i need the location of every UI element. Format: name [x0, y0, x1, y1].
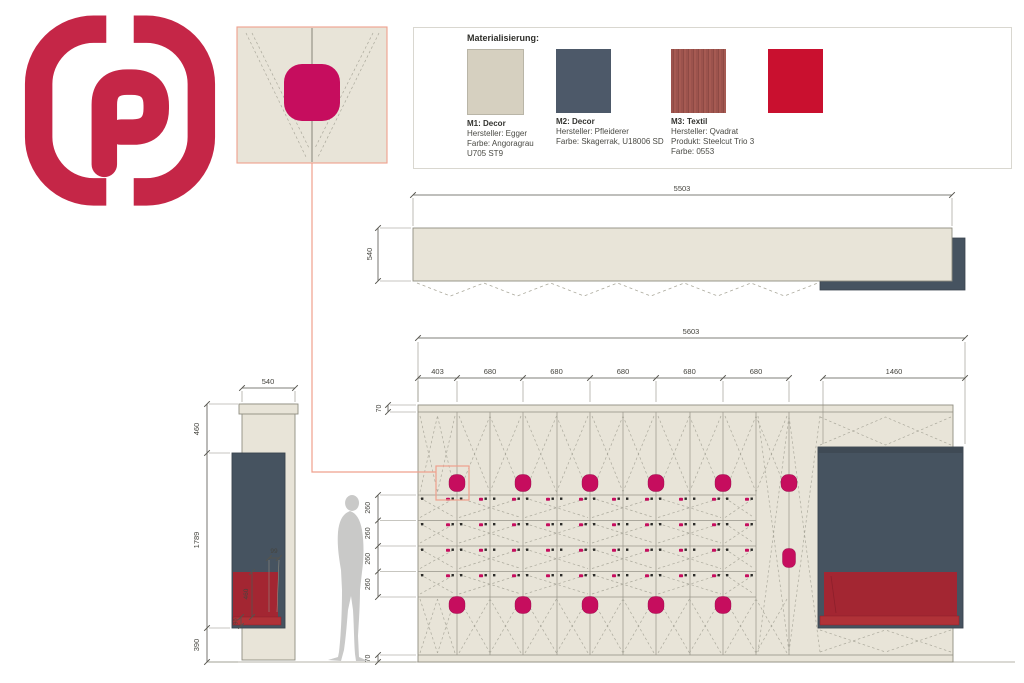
shelf-peg	[526, 549, 528, 551]
shelf-peg	[485, 523, 487, 525]
shelf-peg	[726, 549, 728, 551]
shelf-peg	[518, 498, 520, 500]
shelf-peg	[593, 549, 595, 551]
shelf-peg	[693, 498, 695, 500]
shelf-peg	[659, 498, 661, 500]
shelf-peg	[626, 523, 628, 525]
shelf-peg	[618, 549, 620, 551]
side-cushion	[233, 572, 278, 617]
side-width-label: 540	[262, 377, 275, 386]
peg-marker	[712, 549, 716, 552]
peg-marker	[612, 523, 616, 526]
row-label: 260	[365, 502, 372, 514]
shelf-peg	[560, 549, 562, 551]
peg-marker	[479, 549, 483, 552]
cushion-front-strip	[820, 616, 959, 625]
shelf-peg	[452, 523, 454, 525]
shelf-peg	[421, 574, 423, 576]
peg-marker	[446, 574, 450, 577]
drawing-canvas: 5503540560340368068068068068014607026026…	[0, 0, 1024, 683]
handle-knob	[648, 597, 664, 614]
side-height-label: 1789	[192, 532, 201, 549]
peg-marker	[612, 498, 616, 501]
plan-width-label: 5503	[674, 184, 691, 193]
peg-marker	[645, 523, 649, 526]
bench-cushion	[824, 572, 957, 616]
peg-marker	[745, 498, 749, 501]
shelf-peg	[560, 574, 562, 576]
peg-marker	[712, 523, 716, 526]
side-height-label: 460	[192, 423, 201, 436]
shelf-peg	[560, 498, 562, 500]
shelf-peg	[726, 523, 728, 525]
segment-label: 403	[431, 367, 444, 376]
peg-marker	[712, 498, 716, 501]
shelf-peg	[485, 574, 487, 576]
handle-knob	[648, 475, 664, 492]
peg-marker	[679, 574, 683, 577]
shelf-peg	[485, 498, 487, 500]
row-label: 260	[365, 527, 372, 539]
handle-knob	[582, 597, 598, 614]
shelf-peg	[651, 549, 653, 551]
shelf-peg	[718, 574, 720, 576]
peg-marker	[745, 549, 749, 552]
peg-marker	[512, 523, 516, 526]
shelf-peg	[493, 498, 495, 500]
shelf-peg	[493, 574, 495, 576]
peg-marker	[512, 498, 516, 501]
peg-marker	[579, 523, 583, 526]
shelf-peg	[618, 523, 620, 525]
detail-handle	[284, 64, 340, 121]
shelf-peg	[751, 523, 753, 525]
shelf-peg	[421, 523, 423, 525]
handle-knob	[449, 475, 465, 492]
human-silhouette	[328, 495, 368, 661]
shelf-peg	[421, 549, 423, 551]
strip-label: 90	[234, 618, 240, 624]
handle-knob	[515, 475, 531, 492]
peg-marker	[479, 523, 483, 526]
row-label: 260	[365, 553, 372, 565]
segment-label: 680	[617, 367, 630, 376]
handle-knob	[515, 597, 531, 614]
peg-marker	[546, 498, 550, 501]
shelf-peg	[726, 498, 728, 500]
bench-top-edge	[818, 447, 963, 453]
shelf-peg	[651, 523, 653, 525]
shelf-peg	[526, 523, 528, 525]
shelf-peg	[685, 549, 687, 551]
peg-marker	[546, 549, 550, 552]
peg-marker	[479, 498, 483, 501]
shelf-peg	[626, 574, 628, 576]
peg-marker	[512, 549, 516, 552]
shelf-peg	[751, 549, 753, 551]
handle-knob	[449, 597, 465, 614]
peg-marker	[612, 574, 616, 577]
peg-marker	[679, 498, 683, 501]
shelf-peg	[685, 498, 687, 500]
shelf-peg	[518, 574, 520, 576]
shelf-peg	[552, 574, 554, 576]
handle-knob	[783, 549, 796, 568]
peg-marker	[446, 549, 450, 552]
shelf-peg	[651, 574, 653, 576]
handle-knob	[715, 597, 731, 614]
handle-knob	[781, 475, 797, 492]
shelf-peg	[718, 549, 720, 551]
shelf-peg	[659, 549, 661, 551]
shelf-peg	[593, 498, 595, 500]
peg-marker	[745, 523, 749, 526]
shelf-peg	[585, 523, 587, 525]
shelf-peg	[659, 523, 661, 525]
shelf-peg	[685, 574, 687, 576]
shelf-peg	[518, 523, 520, 525]
peg-marker	[645, 574, 649, 577]
side-height-label: 390	[192, 639, 201, 652]
shelf-peg	[693, 523, 695, 525]
peg-marker	[679, 523, 683, 526]
shelf-peg	[452, 574, 454, 576]
peg-marker	[479, 574, 483, 577]
row-label: 260	[365, 578, 372, 590]
cap-label: 70	[376, 405, 383, 413]
shelf-peg	[552, 549, 554, 551]
shelf-peg	[593, 523, 595, 525]
peg-marker	[612, 549, 616, 552]
peg-marker	[645, 498, 649, 501]
cushion-label: 460	[243, 588, 250, 599]
shelf-peg	[526, 498, 528, 500]
shelf-peg	[585, 574, 587, 576]
shelf-peg	[751, 574, 753, 576]
shelf-peg	[460, 523, 462, 525]
peg-marker	[446, 523, 450, 526]
shelf-peg	[618, 498, 620, 500]
peg-marker	[512, 574, 516, 577]
plan-door-swing	[417, 283, 818, 296]
shelf-peg	[718, 498, 720, 500]
shelf-peg	[493, 523, 495, 525]
side-cap	[239, 404, 298, 414]
shelf-peg	[585, 549, 587, 551]
plan-cabinet	[413, 228, 952, 281]
peg-marker	[679, 549, 683, 552]
shelf-peg	[585, 498, 587, 500]
peg-marker	[579, 574, 583, 577]
shelf-peg	[485, 549, 487, 551]
shelf-peg	[421, 498, 423, 500]
shelf-peg	[651, 498, 653, 500]
shelf-peg	[726, 574, 728, 576]
segment-label: 1460	[886, 367, 903, 376]
handle-knob	[715, 475, 731, 492]
peg-marker	[546, 574, 550, 577]
peg-marker	[745, 574, 749, 577]
plinth-label: 70	[365, 655, 372, 663]
shelf-peg	[452, 549, 454, 551]
shelf-peg	[626, 498, 628, 500]
callout-leader	[312, 163, 436, 472]
shelf-peg	[693, 549, 695, 551]
shelf-peg	[493, 549, 495, 551]
segment-label: 680	[484, 367, 497, 376]
drawing-sheet: Materialisierung: M1: DecorHersteller: E…	[0, 0, 1024, 683]
shelf-peg	[751, 498, 753, 500]
segment-label: 680	[683, 367, 696, 376]
shelf-peg	[552, 498, 554, 500]
peg-marker	[579, 549, 583, 552]
shelf-peg	[560, 523, 562, 525]
peg-marker	[712, 574, 716, 577]
handle-knob	[582, 475, 598, 492]
shelf-peg	[460, 549, 462, 551]
plan-depth-label: 540	[365, 248, 374, 261]
shelf-peg	[718, 523, 720, 525]
segment-label: 680	[750, 367, 763, 376]
shelf-peg	[685, 523, 687, 525]
shelf-peg	[526, 574, 528, 576]
edge-label: 99	[270, 548, 278, 555]
peg-marker	[579, 498, 583, 501]
shelf-peg	[626, 549, 628, 551]
shelf-peg	[518, 549, 520, 551]
peg-marker	[645, 549, 649, 552]
shelf-peg	[552, 523, 554, 525]
shelf-peg	[693, 574, 695, 576]
elevation-total-label: 5603	[683, 327, 700, 336]
shelf-peg	[593, 574, 595, 576]
peg-marker	[546, 523, 550, 526]
shelf-peg	[460, 574, 462, 576]
shelf-peg	[618, 574, 620, 576]
segment-label: 680	[550, 367, 563, 376]
shelf-peg	[659, 574, 661, 576]
